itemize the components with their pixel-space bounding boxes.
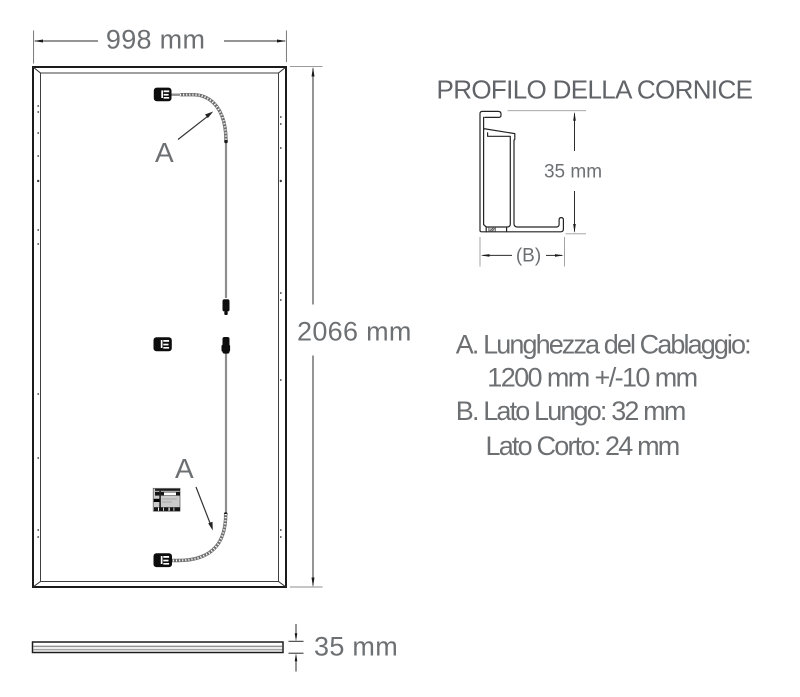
- svg-text:35 mm: 35 mm: [314, 632, 398, 662]
- svg-text:1200 mm +/-10 mm: 1200 mm +/-10 mm: [487, 363, 696, 393]
- svg-text:(B): (B): [516, 246, 541, 267]
- svg-text:PROFILO DELLA CORNICE: PROFILO DELLA CORNICE: [437, 74, 753, 104]
- svg-text:A: A: [175, 453, 194, 484]
- svg-text:A: A: [155, 137, 174, 168]
- svg-text:B. Lato Lungo: 32 mm: B. Lato Lungo: 32 mm: [456, 396, 685, 426]
- svg-text:2066 mm: 2066 mm: [297, 317, 412, 347]
- svg-text:998 mm: 998 mm: [106, 25, 205, 55]
- svg-text:35 mm: 35 mm: [544, 162, 602, 183]
- svg-text:Lato Corto: 24 mm: Lato Corto: 24 mm: [486, 431, 679, 461]
- svg-text:A. Lunghezza del Cablaggio:: A. Lunghezza del Cablaggio:: [456, 329, 750, 359]
